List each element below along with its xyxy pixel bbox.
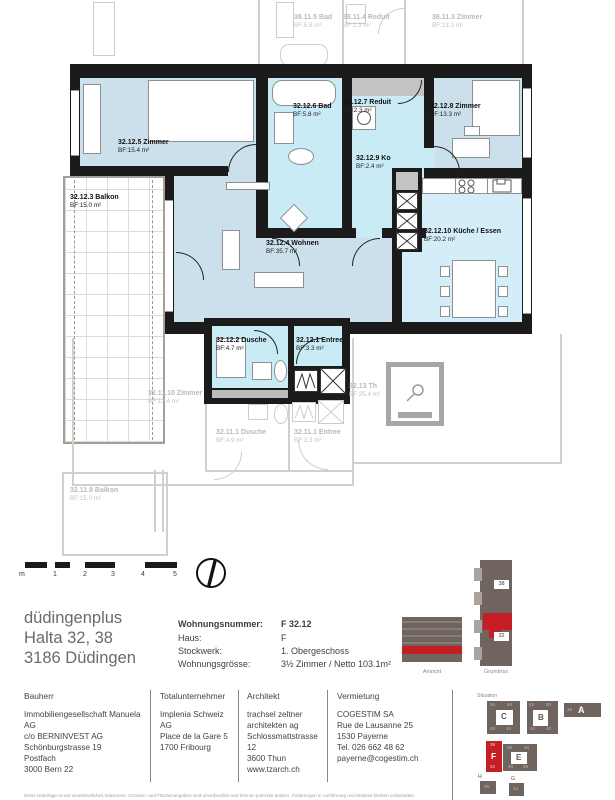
sink xyxy=(248,404,268,420)
wall-segment xyxy=(342,0,344,64)
room-label: 32.12.8 Zimmer BF:13.3 m² xyxy=(430,103,481,118)
ansicht-highlight-floor xyxy=(402,646,462,654)
fine-print: Diese Unterlage ist ein unverbindliches … xyxy=(24,793,444,800)
info-value: 1. Obergeschoss xyxy=(281,646,349,656)
bathtub xyxy=(280,44,328,66)
scalebar-segment xyxy=(145,562,177,568)
shaft-x-icon xyxy=(320,368,346,394)
window xyxy=(523,198,531,314)
north-arrow-icon xyxy=(194,556,228,590)
column-divider xyxy=(327,690,328,782)
grundriss-tab xyxy=(474,647,482,660)
contact-heading: Bauherr xyxy=(24,691,146,701)
vermietung-email: payerne@cogestim.ch xyxy=(337,753,447,764)
grundriss-tab xyxy=(474,568,482,581)
room-label: 32.12.3 Balkon BF:15.0 m² xyxy=(70,194,119,209)
situation-building-h-label: H xyxy=(478,774,482,780)
info-label: Wohnungsnummer: xyxy=(178,619,263,629)
room-label: 32.12.1 Entree BF:3.3 m² xyxy=(296,337,343,352)
room-label: 32.11.10 Zimmer BF:13.4 m² xyxy=(148,390,202,405)
info-label: Wohnungsgrösse: xyxy=(178,659,250,669)
situation-building-g-label: G xyxy=(511,776,515,782)
shaft-x-icon xyxy=(396,232,418,250)
chair xyxy=(464,126,480,136)
situation-building-f: 38 F 32 xyxy=(486,741,502,772)
column-divider xyxy=(452,690,453,800)
toilet xyxy=(288,148,314,165)
chair xyxy=(498,306,508,317)
room-label: 38.11.5 Bad BF:5.8 m² xyxy=(294,14,332,29)
grundriss-tag-38: 38 xyxy=(494,580,509,589)
scalebar-label: m xyxy=(19,571,25,578)
contact-heading: Vermietung xyxy=(337,691,447,701)
room-label: 32.11.9 Balkon BF:15.0 m² xyxy=(70,487,118,502)
architect-website: www.tzarch.ch xyxy=(247,764,325,775)
scalebar-label: 2 xyxy=(83,571,87,578)
ansicht-diagram xyxy=(402,617,462,662)
toilet xyxy=(274,360,287,382)
wall-segment xyxy=(72,338,74,486)
room-label: 32.12.9 Ko BF:2.4 m² xyxy=(356,155,391,170)
sofa xyxy=(222,230,240,270)
door-arc xyxy=(298,440,328,470)
wardrobe-hatch-icon xyxy=(292,402,316,422)
contact-heading: Totalunternehmer xyxy=(160,691,236,701)
sideboard xyxy=(254,272,304,288)
wall-segment xyxy=(288,404,290,472)
room-label: 38.11.3 Zimmer BF:13.3 m² xyxy=(432,14,482,29)
wall-segment xyxy=(342,64,352,228)
wall-segment xyxy=(522,0,524,64)
chair xyxy=(440,286,450,297)
floorplan-sheet: 38.11.5 Bad BF:5.8 m² 38.11.4 Reduit BF:… xyxy=(0,0,615,800)
balcony-dashed-line xyxy=(74,180,75,440)
project-name: düdingenplus xyxy=(24,608,136,628)
scalebar-segment xyxy=(25,562,47,568)
situation-building-a: 46 A xyxy=(564,703,601,717)
kitchen-sink-icon xyxy=(492,179,516,193)
info-label: Haus: xyxy=(178,633,202,643)
threshold xyxy=(212,390,288,398)
balcony-door xyxy=(165,200,173,312)
room-wohnen-4 xyxy=(174,176,268,322)
desk xyxy=(452,138,490,158)
wall-segment xyxy=(256,228,356,238)
room-label: 32.11.1 Entree BF:3.3 m² xyxy=(294,429,341,444)
situation-label: Situation xyxy=(477,693,497,699)
shaft-x-icon xyxy=(318,400,344,424)
wardrobe xyxy=(83,84,101,154)
contact-vermietung: Vermietung COGESTIM SA Rue de Lausanne 2… xyxy=(337,691,447,764)
grundriss-tab xyxy=(474,592,482,605)
column-divider xyxy=(238,690,239,782)
chair xyxy=(440,266,450,277)
wall-segment xyxy=(354,462,562,464)
project-city: 3186 Düdingen xyxy=(24,648,136,668)
elevator-icon xyxy=(404,380,428,404)
wall-segment xyxy=(154,470,156,532)
situation-building-b: 52 50 42 40 B xyxy=(527,701,558,734)
wall-segment xyxy=(340,322,532,334)
room-label: 32.11.1 Dusche BF:4.9 m² xyxy=(216,429,266,444)
wall-segment xyxy=(205,404,207,472)
door-arc xyxy=(214,452,242,480)
sink xyxy=(252,362,272,380)
info-value: 3½ Zimmer / Netto 103.1m² xyxy=(281,659,391,669)
chair xyxy=(440,306,450,317)
room-label: 32.13 Th BF:25.4 m² xyxy=(349,383,380,398)
situation-building-e: 36 34 30 28 E xyxy=(503,744,537,771)
room-label: 38.11.4 Reduit BF:2.3 m² xyxy=(343,14,390,29)
situation-building-c: 56 54 48 44 C xyxy=(487,701,520,734)
toilet xyxy=(274,404,288,424)
ansicht-label: Ansicht xyxy=(402,669,462,675)
shaft-box xyxy=(396,172,418,190)
shaft-x-icon xyxy=(396,192,418,210)
column-divider xyxy=(150,690,151,782)
wall-segment xyxy=(404,0,406,64)
wall-segment xyxy=(560,334,562,464)
contact-heading: Architekt xyxy=(247,691,325,701)
chair xyxy=(498,266,508,277)
project-street: Halta 32, 38 xyxy=(24,628,136,648)
grundriss-highlight xyxy=(483,613,512,630)
window xyxy=(71,90,79,156)
room-label: 32.12.6 Bad BF:5.8 m² xyxy=(293,103,332,118)
dining-table xyxy=(452,260,496,318)
window xyxy=(523,88,531,158)
wall-segment xyxy=(256,64,268,228)
elevator-door xyxy=(398,412,432,418)
scalebar-label: 3 xyxy=(111,571,115,578)
situation-building-g: 24 xyxy=(509,783,524,796)
room-label: 32.12.2 Dusche BF:4.7 m² xyxy=(216,337,267,352)
wardrobe xyxy=(93,2,115,56)
shower xyxy=(276,2,294,38)
contact-architekt: Architekt trachsel zeltner architekten a… xyxy=(247,691,325,775)
info-value: F xyxy=(281,633,287,643)
scalebar-segment xyxy=(55,562,70,568)
ansicht-stripes xyxy=(402,621,462,645)
room-label: 32.12.10 Küche / Essen BF:20.2 m² xyxy=(424,228,501,243)
scalebar-segment xyxy=(85,562,115,568)
bed xyxy=(148,80,254,142)
shaft-x-icon xyxy=(396,212,418,230)
chair xyxy=(498,286,508,297)
shelf xyxy=(226,182,270,190)
balcony-deck xyxy=(62,472,168,556)
wall-segment xyxy=(258,0,260,64)
grundriss-label: Grundriss xyxy=(472,669,520,675)
wall-segment xyxy=(70,64,532,78)
room-label: 32.12.5 Zimmer BF:15.4 m² xyxy=(118,139,169,154)
situation-building-h: 26 xyxy=(480,781,496,794)
project-title: düdingenplus Halta 32, 38 3186 Düdingen xyxy=(24,608,136,668)
grundriss-tag-32: 32 xyxy=(494,632,509,641)
info-label: Stockwerk: xyxy=(178,646,222,656)
stove-burners-icon xyxy=(456,179,480,193)
sink xyxy=(274,112,294,144)
room-label: 32.12.4 Wohnen BF:35.7 m² xyxy=(266,240,319,255)
room-label: 32.12.7 Reduit BF:2.3 m² xyxy=(344,99,391,114)
wardrobe-hatch-icon xyxy=(294,370,318,392)
info-value: F 32.12 xyxy=(281,619,312,629)
scalebar-label: 5 xyxy=(173,571,177,578)
scalebar-label: 1 xyxy=(53,571,57,578)
wall-segment xyxy=(162,470,164,532)
scalebar-label: 4 xyxy=(141,571,145,578)
contact-totalunternehmer: Totalunternehmer Implenia Schweiz AG Pla… xyxy=(160,691,236,753)
contact-bauherr: Bauherr Immobiliengesellschaft Manuela A… xyxy=(24,691,146,775)
wall-segment xyxy=(70,166,228,176)
kitchen-counter xyxy=(422,178,456,194)
grundriss-tab xyxy=(474,620,482,633)
